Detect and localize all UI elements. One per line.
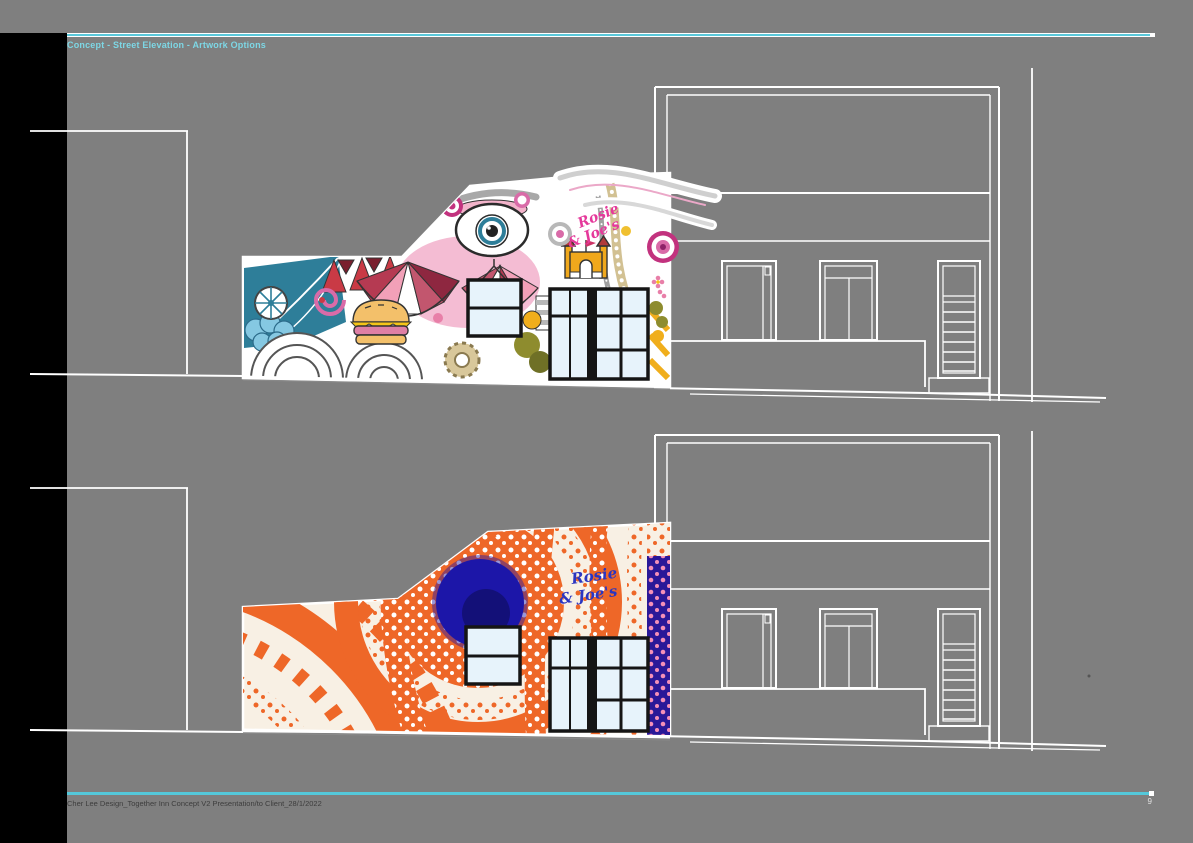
elevation-bottom-boundary-line bbox=[30, 488, 243, 732]
elevation-top: Rosie & Joe's bbox=[30, 68, 1106, 425]
elevation-top-mural: Rosie & Joe's bbox=[243, 172, 715, 425]
ferris-wheel bbox=[255, 287, 287, 319]
storefront-window bbox=[550, 289, 648, 379]
elevation-top-building-outline bbox=[655, 87, 1106, 402]
elevation-bottom: Rosie & Joe's bbox=[0, 431, 1106, 843]
display-window bbox=[466, 627, 520, 684]
footer-rule bbox=[67, 792, 1152, 795]
display-window bbox=[468, 280, 521, 336]
page-number: 9 bbox=[1132, 797, 1152, 806]
burger-illustration bbox=[351, 300, 411, 344]
elevation-bottom-mural: Rosie & Joe's bbox=[0, 470, 670, 843]
document-footer-label: Cher Lee Design_Together Inn Concept V2 … bbox=[67, 799, 322, 808]
elevation-top-boundary-line bbox=[30, 131, 243, 376]
storefront-window bbox=[550, 638, 648, 731]
elevation-bottom-building-outline bbox=[655, 435, 1106, 750]
presentation-slide: Concept - Street Elevation - Artwork Opt… bbox=[0, 0, 1193, 843]
pink-dot-strip bbox=[647, 523, 670, 735]
elevation-drawings: Rosie & Joe's bbox=[0, 0, 1193, 843]
stray-dot bbox=[1088, 675, 1091, 678]
